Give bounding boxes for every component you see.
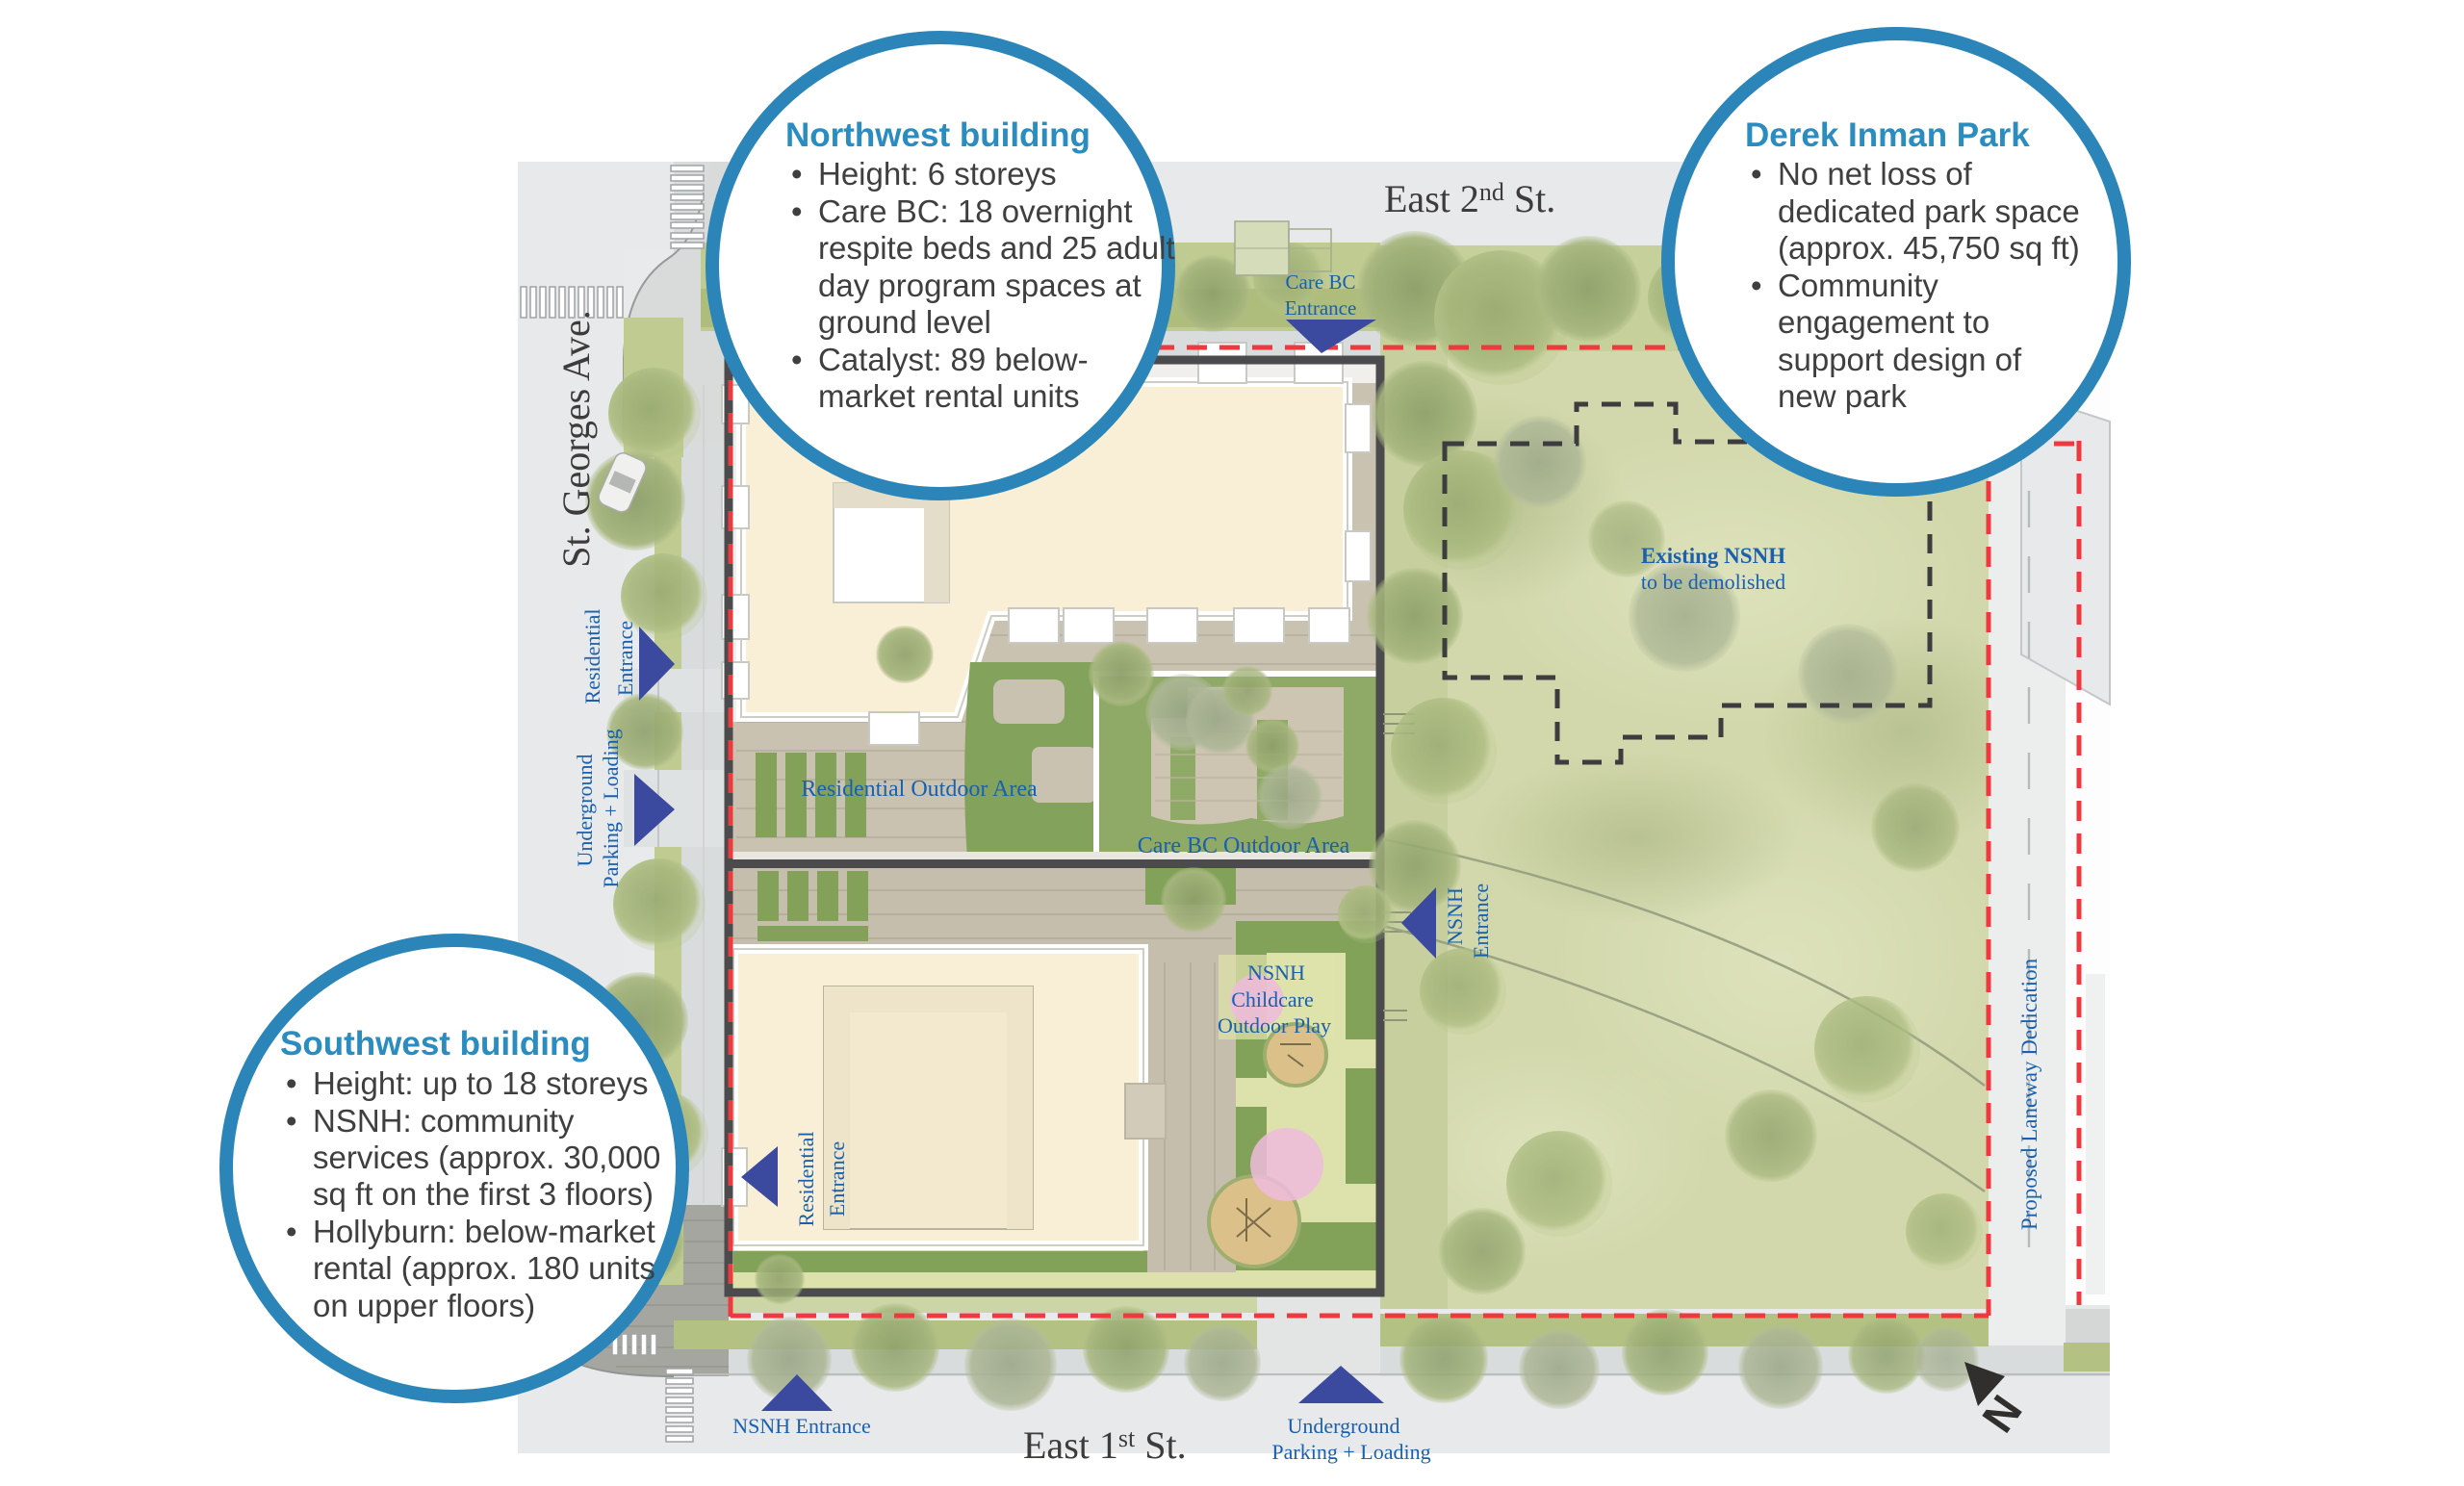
svg-text:Underground: Underground <box>573 755 597 867</box>
svg-text:•: • <box>286 1214 297 1249</box>
svg-text:Residential Outdoor Area: Residential Outdoor Area <box>801 777 1038 802</box>
svg-text:Community: Community <box>1778 268 1938 303</box>
svg-text:•: • <box>791 342 803 377</box>
svg-text:East 1st St.: East 1st St. <box>1023 1423 1187 1467</box>
svg-text:Outdoor Play: Outdoor Play <box>1218 1013 1331 1038</box>
svg-text:NSNH Entrance: NSNH Entrance <box>732 1414 871 1438</box>
svg-text:support design of: support design of <box>1778 342 2022 377</box>
svg-text:•: • <box>791 156 803 192</box>
svg-text:sq ft on the first 3 floors): sq ft on the first 3 floors) <box>313 1176 654 1212</box>
svg-text:Residential: Residential <box>794 1132 818 1227</box>
svg-text:NSNH: community: NSNH: community <box>313 1103 575 1139</box>
svg-text:Hollyburn: below-market: Hollyburn: below-market <box>313 1214 655 1249</box>
svg-text:•: • <box>1751 268 1762 303</box>
svg-text:Entrance: Entrance <box>1469 884 1493 959</box>
svg-text:day program spaces at: day program spaces at <box>818 268 1142 303</box>
svg-text:Proposed Laneway Dedication: Proposed Laneway Dedication <box>2017 958 2041 1230</box>
svg-text:Underground: Underground <box>1288 1414 1400 1438</box>
svg-text:Parking + Loading: Parking + Loading <box>599 729 623 887</box>
svg-text:ground level: ground level <box>818 304 991 340</box>
svg-text:rental (approx. 180 units: rental (approx. 180 units <box>313 1250 655 1286</box>
svg-text:Parking + Loading: Parking + Loading <box>1271 1440 1430 1464</box>
svg-text:(approx. 45,750 sq ft): (approx. 45,750 sq ft) <box>1778 230 2080 266</box>
svg-text:East 2nd St.: East 2nd St. <box>1384 177 1555 220</box>
svg-text:on upper floors): on upper floors) <box>313 1288 535 1323</box>
svg-text:services (approx. 30,000: services (approx. 30,000 <box>313 1140 660 1175</box>
svg-text:•: • <box>1751 156 1762 192</box>
svg-text:Entrance: Entrance <box>1285 296 1357 320</box>
svg-text:Care BC Outdoor Area: Care BC Outdoor Area <box>1138 833 1350 858</box>
svg-text:Existing NSNH: Existing NSNH <box>1641 544 1785 568</box>
svg-text:Catalyst: 89 below-: Catalyst: 89 below- <box>818 342 1089 377</box>
svg-text:No net loss of: No net loss of <box>1778 156 1973 192</box>
svg-text:St. Georges Ave.: St. Georges Ave. <box>554 310 598 567</box>
svg-text:Childcare: Childcare <box>1231 987 1314 1012</box>
svg-text:•: • <box>286 1103 297 1139</box>
svg-text:dedicated park space: dedicated park space <box>1778 193 2080 229</box>
svg-text:Entrance: Entrance <box>825 1141 849 1217</box>
svg-text:Derek Inman Park: Derek Inman Park <box>1745 116 2030 154</box>
svg-text:Northwest building: Northwest building <box>785 116 1091 154</box>
svg-text:respite beds and 25 adult: respite beds and 25 adult <box>818 230 1175 266</box>
svg-text:new park: new park <box>1778 378 1907 414</box>
svg-text:•: • <box>286 1065 297 1101</box>
svg-text:NSNH: NSNH <box>1247 961 1305 985</box>
svg-text:Residential: Residential <box>580 609 604 705</box>
svg-text:•: • <box>791 193 803 229</box>
svg-text:Height: up to 18 storeys: Height: up to 18 storeys <box>313 1065 649 1101</box>
svg-text:Southwest building: Southwest building <box>280 1025 591 1063</box>
svg-text:NSNH: NSNH <box>1443 887 1467 945</box>
svg-text:engagement to: engagement to <box>1778 304 1989 340</box>
svg-text:market rental units: market rental units <box>818 378 1079 414</box>
svg-text:Height: 6 storeys: Height: 6 storeys <box>818 156 1057 192</box>
svg-text:Care BC: Care BC <box>1286 270 1356 294</box>
svg-text:to be demolished: to be demolished <box>1641 570 1785 594</box>
svg-text:Entrance: Entrance <box>613 621 637 696</box>
svg-text:Care BC: 18 overnight: Care BC: 18 overnight <box>818 193 1133 229</box>
